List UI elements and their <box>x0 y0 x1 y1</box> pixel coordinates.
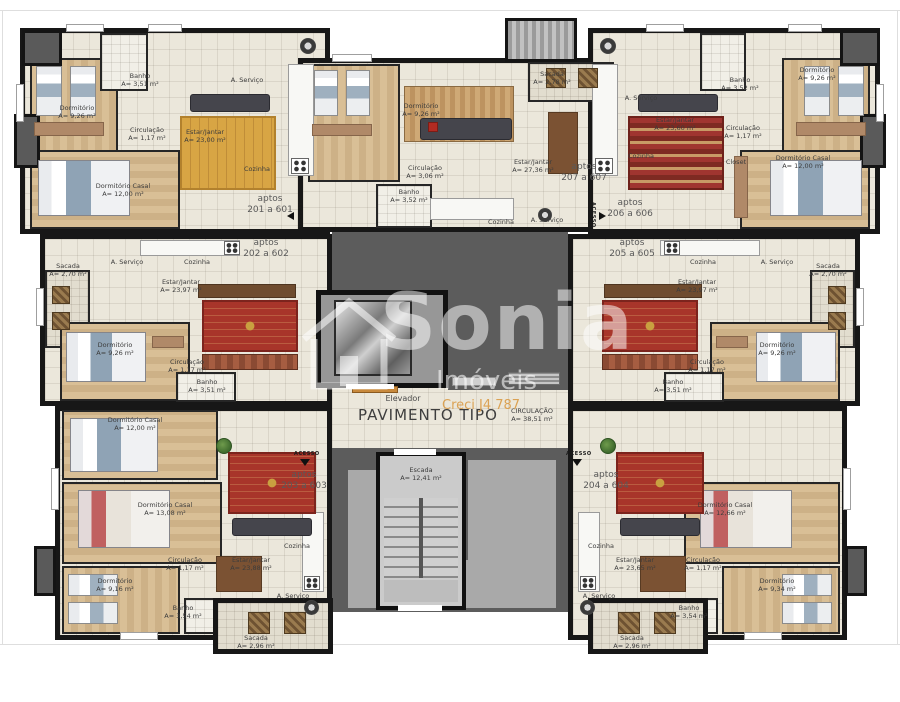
window <box>646 24 684 32</box>
room-label: DormitórioA= 9,16 m² <box>80 577 150 594</box>
room-label: SacadaA= 2,70 m² <box>40 262 96 279</box>
room-label: A. Serviço <box>564 592 634 600</box>
plant <box>600 438 616 454</box>
room-label: SacadaA= 2,70 m² <box>800 262 856 279</box>
window <box>120 632 158 640</box>
desk <box>152 336 184 348</box>
room-label: Estar/JantarA= 23,00 m² <box>170 128 240 145</box>
access-label-right: ACESSO <box>590 202 596 228</box>
wardrobe <box>312 124 372 136</box>
room-label: A. Serviço <box>92 258 162 266</box>
apartment-label-203: aptos203 a 603 <box>272 470 336 492</box>
window <box>36 288 44 326</box>
room-label: SacadaA= 2,96 m² <box>228 634 284 651</box>
balcony-block-top-center <box>505 18 577 62</box>
room-label: BanhoA= 3,54 m² <box>156 604 210 621</box>
apartment-label-206: aptos206 a 606 <box>598 198 662 220</box>
access-label-bottom-right: ACESSO <box>566 451 592 457</box>
double-bed <box>78 490 170 548</box>
room-label: A. Serviço <box>258 592 328 600</box>
window <box>51 468 59 510</box>
washer <box>300 38 316 54</box>
single-bed <box>68 602 118 624</box>
window <box>876 84 884 122</box>
sofa <box>232 518 312 536</box>
kitchen-counter <box>430 198 514 220</box>
room-label: DormitórioA= 9,26 m² <box>386 102 456 119</box>
apartment-label-207: aptos207 a 607 <box>552 162 616 184</box>
stair-treads-right <box>423 498 458 578</box>
room-label: BanhoA= 3,52 m² <box>712 76 768 93</box>
single-bed <box>314 70 338 116</box>
rug <box>202 300 298 352</box>
room-label: CirculaçãoA= 1,17 m² <box>708 124 778 141</box>
page-border-left <box>2 10 3 645</box>
window <box>744 632 782 640</box>
room-label: DormitórioA= 9,34 m² <box>742 577 812 594</box>
sofa <box>620 518 700 536</box>
page-border-top <box>0 10 900 11</box>
room-label: Estar/JantarA= 23,60 m² <box>640 116 710 133</box>
washer <box>304 600 319 615</box>
room-label: CirculaçãoA= 1,17 m² <box>668 556 738 573</box>
balcony-chair <box>828 286 846 304</box>
room-label: Estar/JantarA= 23,88 m² <box>216 556 286 573</box>
room-label: Estar/JantarA= 23,97 m² <box>662 278 732 295</box>
side-balcony-left-lower <box>34 546 56 596</box>
stair-door-top <box>394 449 436 455</box>
wardrobe <box>796 122 866 136</box>
room-label: DormitórioA= 9,26 m² <box>782 66 852 83</box>
room-label: Dormitório CasalA= 12,66 m² <box>690 501 760 518</box>
apartment-label-202: aptos202 a 602 <box>234 238 298 260</box>
stove <box>580 576 596 590</box>
room-label: Cozinha <box>162 258 232 266</box>
stove <box>664 241 680 255</box>
stove <box>304 576 320 590</box>
room-label: Estar/JantarA= 23,65 m² <box>600 556 670 573</box>
balcony-chair <box>248 612 270 634</box>
room-label: SacadaA= 2,78 m² <box>522 70 582 87</box>
room-label: BanhoA= 3,51 m² <box>110 72 170 89</box>
washer <box>600 38 616 54</box>
room-label: A. Serviço <box>512 216 582 224</box>
balcony-chair <box>618 612 640 634</box>
apartment-label-201: aptos201 a 601 <box>238 194 302 216</box>
stair-rail <box>419 498 423 578</box>
floor-plan: Elevador PAVIMENTO TIPO CIRCULAÇÃO A= 38… <box>0 0 900 702</box>
window <box>66 24 104 32</box>
access-arrow-bottom-left <box>300 459 310 466</box>
access-arrow-bottom-right <box>572 459 582 466</box>
room-label: CirculaçãoA= 1,17 m² <box>150 556 220 573</box>
stove <box>291 158 309 174</box>
room-label: Cozinha <box>606 152 676 160</box>
elevator-label: Elevador <box>368 394 438 403</box>
window <box>788 24 822 32</box>
window <box>148 24 182 32</box>
apartment-label-205: aptos205 a 605 <box>600 238 664 260</box>
room-label: Closet <box>714 158 758 166</box>
washer <box>580 600 595 615</box>
single-bed <box>346 70 370 116</box>
room-label: DormitórioA= 9,26 m² <box>80 341 150 358</box>
stair-treads-left <box>384 498 419 578</box>
room-label: BanhoA= 3,52 m² <box>384 188 434 205</box>
watermark-creci: Creci J4 787 <box>442 398 520 413</box>
single-bed <box>782 602 832 624</box>
page-border-right <box>897 10 898 645</box>
apartment-label-204: aptos204 a 604 <box>574 470 638 492</box>
watermark-subtitle: Imóveis <box>436 366 537 396</box>
room-label: SacadaA= 2,96 m² <box>604 634 660 651</box>
room-label: BanhoA= 3,51 m² <box>646 378 700 395</box>
corner-balcony-top-right <box>840 30 880 66</box>
window <box>856 288 864 326</box>
sofa-cushion <box>428 122 438 132</box>
room-label: Cozinha <box>262 542 332 550</box>
balcony-chair <box>52 286 70 304</box>
room-label: CirculaçãoA= 1,17 m² <box>152 358 222 375</box>
watermark-brand: Sonia <box>380 278 635 368</box>
room-label: Dormitório CasalA= 13,08 m² <box>130 501 200 518</box>
wardrobe <box>34 122 104 136</box>
room-label: A. Serviço <box>212 76 282 84</box>
stairs-label: Escada A= 12,41 m² <box>386 466 456 483</box>
room-label: Dormitório CasalA= 12,00 m² <box>768 154 838 171</box>
sofa <box>190 94 270 112</box>
stair-door-bottom <box>398 605 442 611</box>
room-label: DormitórioA= 9,26 m² <box>42 104 112 121</box>
room-label: CirculaçãoA= 1,17 m² <box>672 358 742 375</box>
window <box>332 54 372 62</box>
room-label: Cozinha <box>566 542 636 550</box>
room-label: Dormitório CasalA= 12,00 m² <box>100 416 170 433</box>
room-label: Cozinha <box>222 165 292 173</box>
room-label: A. Serviço <box>606 94 676 102</box>
corner-balcony-top-left <box>22 30 62 66</box>
window <box>843 468 851 510</box>
balcony-chair <box>52 312 70 330</box>
room-label: BanhoA= 3,51 m² <box>180 378 234 395</box>
double-bed <box>700 490 792 548</box>
room-label: BanhoA= 3,54 m² <box>662 604 716 621</box>
room-label: Cozinha <box>668 258 738 266</box>
side-balcony-right-lower <box>845 546 867 596</box>
room-label: DormitórioA= 9,26 m² <box>742 341 812 358</box>
access-label-bottom-left: ACESSO <box>294 451 320 457</box>
balcony-chair <box>284 612 306 634</box>
room-label: Estar/JantarA= 23,97 m² <box>146 278 216 295</box>
room-label: CirculaçãoA= 3,06 m² <box>390 164 460 181</box>
room-label: Dormitório CasalA= 12,00 m² <box>88 182 158 199</box>
stair-landing <box>384 580 458 602</box>
window <box>16 84 24 122</box>
balcony-chair <box>828 312 846 330</box>
page-border-bottom <box>0 644 900 645</box>
